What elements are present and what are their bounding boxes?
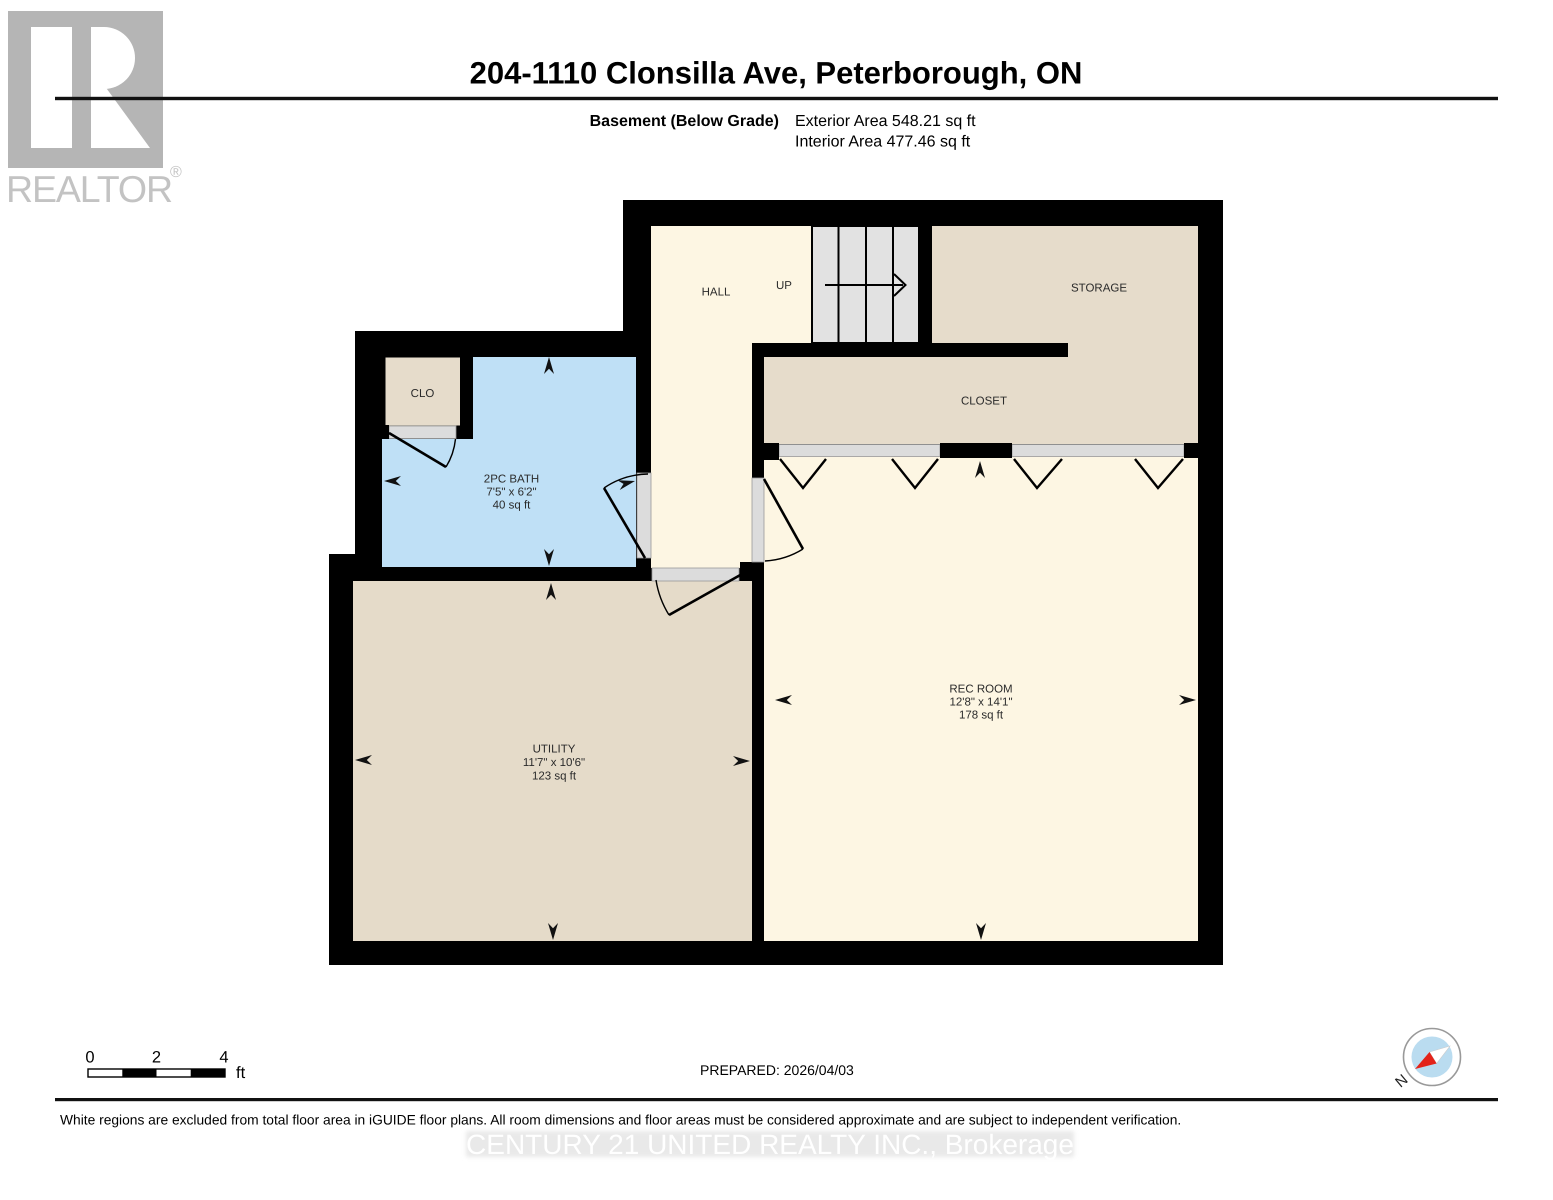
svg-text:STORAGE: STORAGE: [1071, 282, 1127, 294]
svg-text:CENTURY 21 UNITED REALTY INC.,: CENTURY 21 UNITED REALTY INC., Brokerage: [466, 1129, 1074, 1160]
svg-text:204-1110 Clonsilla Ave, Peterb: 204-1110 Clonsilla Ave, Peterborough, ON: [470, 56, 1083, 91]
svg-text:4: 4: [219, 1049, 228, 1067]
svg-text:40 sq ft: 40 sq ft: [493, 500, 532, 512]
svg-text:UTILITY: UTILITY: [533, 743, 576, 755]
svg-text:2PC BATH: 2PC BATH: [484, 474, 539, 486]
svg-text:REALTOR: REALTOR: [6, 168, 172, 210]
svg-text:7'5" x 6'2": 7'5" x 6'2": [486, 487, 536, 499]
svg-text:123 sq ft: 123 sq ft: [532, 770, 577, 782]
svg-text:Exterior Area 548.21 sq ft: Exterior Area 548.21 sq ft: [795, 113, 976, 130]
svg-text:CLOSET: CLOSET: [961, 395, 1007, 407]
svg-text:HALL: HALL: [702, 286, 731, 298]
svg-text:11'7" x 10'6": 11'7" x 10'6": [523, 757, 585, 769]
svg-text:PREPARED: 2026/04/03: PREPARED: 2026/04/03: [700, 1062, 854, 1078]
svg-text:Interior Area 477.46 sq ft: Interior Area 477.46 sq ft: [795, 134, 971, 151]
svg-text:CLO: CLO: [411, 388, 435, 400]
svg-text:178 sq ft: 178 sq ft: [959, 710, 1004, 722]
svg-text:UP: UP: [776, 280, 792, 292]
svg-text:White regions are excluded fro: White regions are excluded from total fl…: [60, 1113, 1181, 1128]
svg-text:ft: ft: [236, 1064, 246, 1082]
svg-text:®: ®: [170, 164, 182, 181]
svg-text:12'8" x 14'1": 12'8" x 14'1": [949, 697, 1012, 709]
svg-text:Basement (Below Grade): Basement (Below Grade): [590, 113, 779, 130]
svg-text:0: 0: [85, 1049, 94, 1067]
svg-text:2: 2: [152, 1049, 161, 1067]
svg-text:REC ROOM: REC ROOM: [949, 684, 1012, 696]
